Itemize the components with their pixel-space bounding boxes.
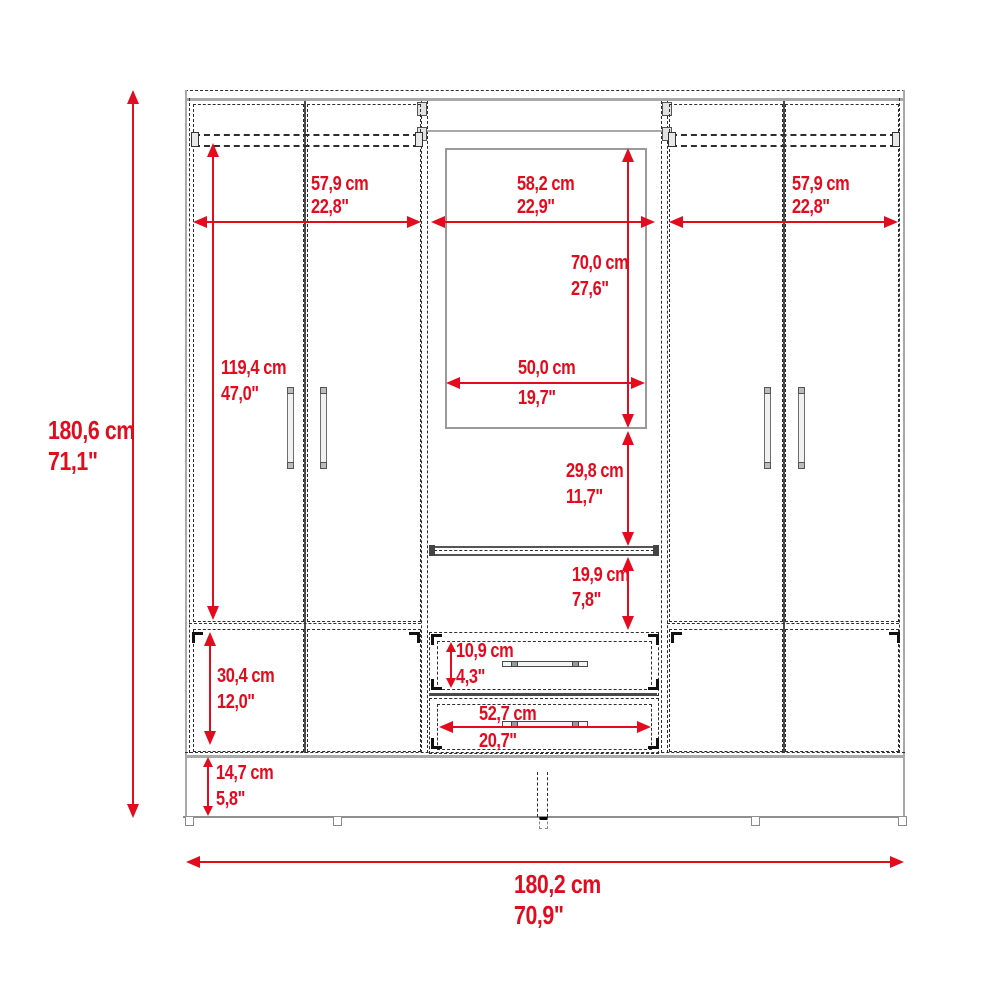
dim-arrow (203, 757, 213, 767)
corner-bracket (671, 632, 682, 643)
dim-drawer-height-line (450, 650, 452, 680)
dim-left-width-cm: 57,9 cm (311, 174, 368, 194)
dim-mirror-width-in: 19,7" (518, 388, 556, 408)
right-lower-door-2 (785, 629, 899, 752)
base-top-hidden-line (185, 752, 905, 753)
dim-overall-height-line (132, 92, 134, 806)
right-door-handle-1 (764, 388, 771, 468)
cabinet-right-edge (903, 90, 905, 818)
dim-arrow (637, 721, 651, 733)
left-lower-door-2 (307, 629, 421, 752)
cabinet-left-hidden-edge (189, 98, 190, 753)
dim-overall-width-in: 70,9" (514, 902, 564, 928)
center-left-wall-outer (421, 101, 422, 753)
shelf-end-cap (429, 545, 435, 556)
dim-arrow (407, 216, 421, 228)
center-shelf (429, 546, 659, 556)
dim-arrow (446, 377, 460, 389)
dim-drawer-width-line (450, 726, 640, 728)
dimension-drawing: 180,6 cm 71,1" 180,2 cm 70,9" 57,9 cm 22… (0, 0, 1000, 1000)
dim-arrow (622, 431, 634, 445)
dim-drawer-height-in: 4,3" (456, 667, 485, 687)
dim-arrow (884, 216, 898, 228)
center-top-shelf-line (427, 130, 662, 132)
dim-right-width-in: 22,8" (792, 197, 830, 217)
base-center-support-hidden (537, 772, 538, 817)
left-rod-end-cap (415, 132, 423, 147)
dim-overall-height-cm: 180,6 cm (48, 417, 135, 443)
corner-bracket (889, 632, 900, 643)
dim-mirror-height-cm: 70,0 cm (571, 253, 628, 273)
corner-bracket (648, 738, 659, 749)
left-section-shelf-hidden-line (189, 623, 421, 624)
dim-lower-door-in: 12,0" (217, 692, 255, 712)
center-right-wall-outer (667, 101, 668, 753)
dim-mirror-shelf-cm: 29,8 cm (566, 461, 623, 481)
corner-bracket (192, 632, 203, 643)
cabinet-left-edge (185, 90, 187, 818)
dim-arrow (431, 216, 445, 228)
dim-arrow (622, 148, 634, 162)
dim-arrow (207, 606, 219, 620)
dim-mirror-width-cm: 50,0 cm (518, 358, 575, 378)
dim-base-height-line (207, 764, 209, 808)
foot (898, 817, 907, 826)
corner-bracket (409, 632, 420, 643)
dim-left-width-line (200, 221, 412, 223)
dim-mirror-height-in: 27,6" (571, 279, 609, 299)
dim-left-width-in: 22,8" (311, 197, 349, 217)
corner-bracket (648, 634, 659, 645)
dim-mirror-shelf-line (627, 441, 629, 537)
dim-arrow (669, 216, 683, 228)
cabinet-right-hidden-edge (899, 98, 900, 753)
dim-base-height-in: 5,8" (216, 789, 245, 809)
drawer-1-handle (502, 661, 588, 667)
dim-arrow (204, 632, 216, 646)
dim-drawer-width-in: 20,7" (479, 731, 517, 751)
corner-bracket (431, 679, 442, 690)
dim-center-width-in: 22,9" (517, 197, 555, 217)
shelf-end-cap (653, 545, 659, 556)
cabinet-top-panel (185, 98, 905, 101)
dim-arrow (193, 216, 207, 228)
dim-mirror-height-line (627, 160, 629, 418)
dim-arrow (631, 377, 645, 389)
dim-right-width-line (676, 221, 892, 223)
drawer-separator (429, 693, 657, 696)
dim-base-height-cm: 14,7 cm (216, 763, 273, 783)
dim-door-height-cm: 119,4 cm (221, 358, 286, 378)
right-lower-door-1 (669, 629, 783, 752)
left-hanging-rod (194, 134, 419, 147)
right-rod-end-cap (668, 132, 676, 147)
dim-drawer-height-cm: 10,9 cm (456, 641, 513, 661)
corner-bracket (648, 679, 659, 690)
dim-arrow (127, 90, 139, 104)
dim-arrow (622, 616, 634, 630)
corner-bracket (431, 634, 442, 645)
dim-arrow (890, 856, 904, 868)
dim-arrow (203, 806, 213, 816)
dim-center-width-cm: 58,2 cm (517, 174, 574, 194)
right-rod-end-cap (892, 132, 900, 147)
dim-arrow (439, 721, 453, 733)
dim-door-height-line (212, 155, 214, 610)
dim-lower-door-line (209, 642, 211, 736)
dim-door-height-in: 47,0" (221, 384, 259, 404)
dim-overall-width-line (198, 861, 892, 863)
dim-lower-door-cm: 30,4 cm (217, 666, 274, 686)
center-left-wall-inner (427, 101, 428, 753)
dim-right-width-cm: 57,9 cm (792, 174, 849, 194)
dim-shelf-drawer-in: 7,8" (572, 590, 601, 610)
dim-arrow (641, 216, 655, 228)
dim-overall-width-cm: 180,2 cm (514, 871, 601, 897)
dim-arrow (446, 678, 456, 688)
corner-bracket (431, 738, 442, 749)
dim-overall-height-in: 71,1" (48, 448, 98, 474)
foot (751, 817, 760, 826)
right-hanging-rod (671, 134, 896, 147)
cabinet-top-dashed-edge (185, 90, 905, 91)
right-door-handle-2 (798, 388, 805, 468)
dim-mirror-width-line (453, 382, 639, 384)
left-door-handle-2 (320, 388, 327, 468)
dim-arrow (204, 731, 216, 745)
right-section-shelf-hidden-line (667, 623, 899, 624)
dim-arrow (622, 414, 634, 428)
dim-center-width-line (438, 221, 648, 223)
left-door-divider (304, 101, 306, 753)
dim-shelf-drawer-cm: 19,9 cm (572, 565, 629, 585)
dim-mirror-shelf-in: 11,7" (566, 487, 603, 507)
foot (333, 817, 342, 826)
left-rod-end-cap (191, 132, 199, 147)
dim-arrow (207, 143, 219, 157)
right-door-panel-1 (669, 104, 783, 622)
left-door-handle-1 (287, 388, 294, 468)
dim-arrow (622, 532, 634, 546)
center-right-wall-inner (661, 101, 662, 753)
dim-arrow (127, 804, 139, 818)
dim-arrow (186, 856, 200, 868)
dim-drawer-width-cm: 52,7 cm (479, 704, 536, 724)
foot-center-hidden (539, 817, 548, 829)
dim-arrow (446, 642, 456, 652)
base-top-panel (185, 755, 905, 758)
foot (185, 817, 194, 826)
base-center-support-hidden (547, 772, 548, 817)
